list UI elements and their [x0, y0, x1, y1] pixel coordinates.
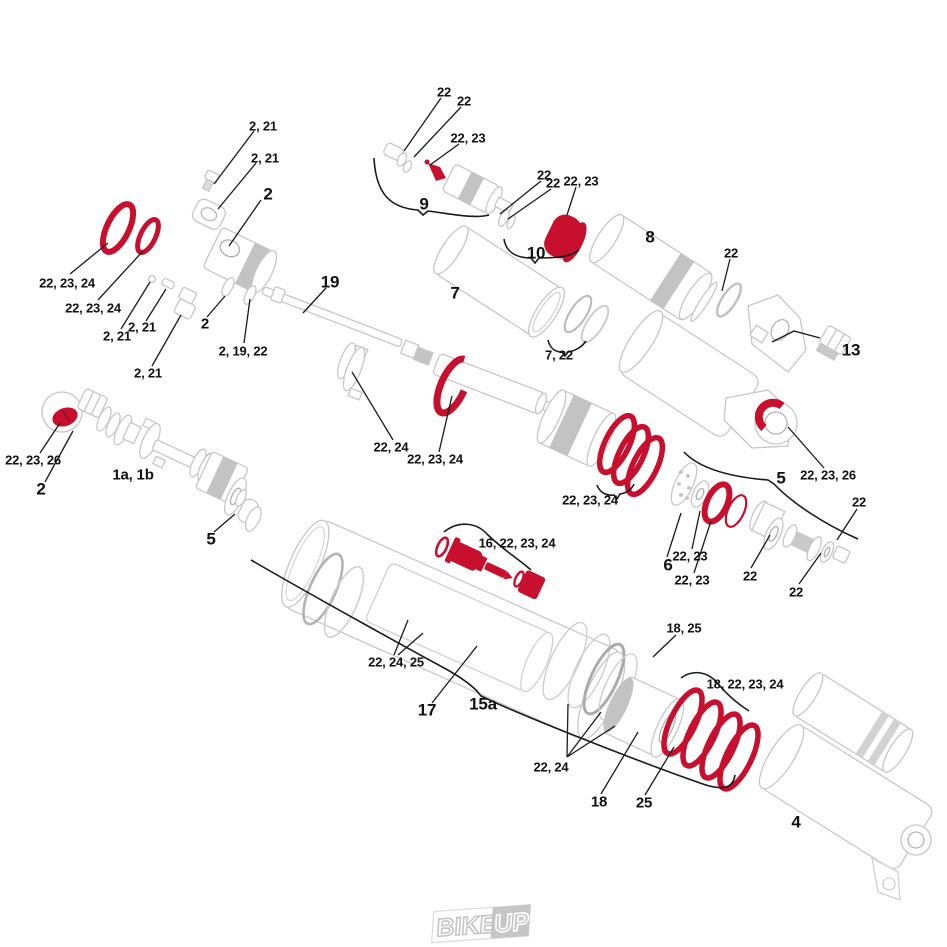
callout-label: 5 [776, 470, 785, 487]
callout-label: 2, 21 [128, 321, 156, 334]
adjuster-knob [190, 197, 227, 232]
callout-label: 7 [450, 285, 459, 302]
callout-label: 2 [263, 186, 272, 203]
callout-label: 22, 23, 24 [562, 494, 618, 507]
damper-shaft-19 [261, 283, 404, 349]
callout-label: 13 [842, 342, 861, 359]
can-oring-22 [713, 280, 745, 319]
exploded-diagram-page: BIKE! UP 222222, 239222222, 23108221377,… [0, 0, 947, 947]
callout-label: 22, 23 [451, 132, 486, 145]
callout-label: 7, 22 [545, 349, 573, 362]
tube-oring-7-22 [560, 292, 596, 336]
callout-label: 10 [527, 245, 546, 262]
callout-label: 1a, 1b [112, 468, 153, 483]
callout-label: 22 [852, 496, 866, 509]
callout-label: 18, 25 [667, 622, 702, 635]
detent-ball [149, 276, 156, 283]
callout-label: 6 [663, 557, 672, 574]
callout-label: 22, 23 [564, 175, 599, 188]
callout-label: 22, 24 [534, 761, 569, 774]
callout-label: 22, 23 [673, 550, 708, 563]
callout-label: 22, 23 [675, 574, 710, 587]
red-adjuster-needle [425, 160, 447, 182]
logo-text-up: UP [494, 908, 531, 938]
shaft-flange-plate [329, 341, 377, 400]
callout-label: 8 [645, 229, 654, 246]
callout-label: 22 [789, 586, 803, 599]
callout-label: 2, 21 [103, 330, 131, 343]
shaft-thread-collar [400, 340, 433, 365]
callout-label: 9 [419, 196, 428, 213]
damper-head-body [203, 226, 282, 296]
callout-label: 22 [724, 247, 738, 260]
callout-label: 4 [791, 814, 800, 831]
reservoir-eyelet [901, 825, 931, 855]
callout-label: 2 [201, 317, 209, 332]
callout-label: 18 [591, 795, 607, 810]
red-oring-small [133, 217, 162, 256]
callout-label: 2, 21 [134, 367, 162, 380]
callout-label: 2, 19, 22 [219, 345, 268, 358]
callout-label: 22 [437, 86, 451, 99]
callout-label: 2, 21 [249, 120, 277, 133]
callout-label: 22 [743, 570, 757, 583]
callout-label: 22, 24 [374, 441, 409, 454]
line-art [42, 142, 935, 900]
callout-label: 2 [36, 481, 45, 498]
end-nut [832, 546, 850, 564]
callout-label: 17 [418, 702, 437, 719]
callout-label: 22, 23, 24 [407, 453, 463, 466]
callout-label: 25 [636, 796, 652, 811]
callout-label: 22, 23, 24 [39, 277, 95, 290]
callout-label: 22, 23, 26 [5, 454, 61, 467]
callout-label: 22 [457, 95, 471, 108]
callout-label: 5 [206, 531, 215, 548]
callout-label: 15a [469, 696, 497, 713]
callout-label: 22, 23, 24 [65, 302, 121, 315]
clevis-fitting-9 [380, 142, 417, 173]
callout-label: 22 [546, 177, 560, 190]
callout-label: 18, 22, 23, 24 [707, 678, 784, 691]
callout-label: 22, 24, 25 [368, 656, 424, 669]
retainer-clip [161, 278, 175, 290]
elbow-fitting [172, 287, 202, 320]
tube-oring-7-22 [577, 302, 613, 346]
callout-label: 19 [321, 274, 340, 291]
spacer-stack [94, 405, 165, 468]
bikeup-logo: BIKE! UP [429, 905, 532, 943]
callout-label: 22, 23, 26 [800, 469, 856, 482]
callout-label: 16, 22, 23, 24 [479, 537, 556, 550]
callout-label: 2, 21 [251, 152, 279, 165]
washer-2 [220, 276, 237, 298]
